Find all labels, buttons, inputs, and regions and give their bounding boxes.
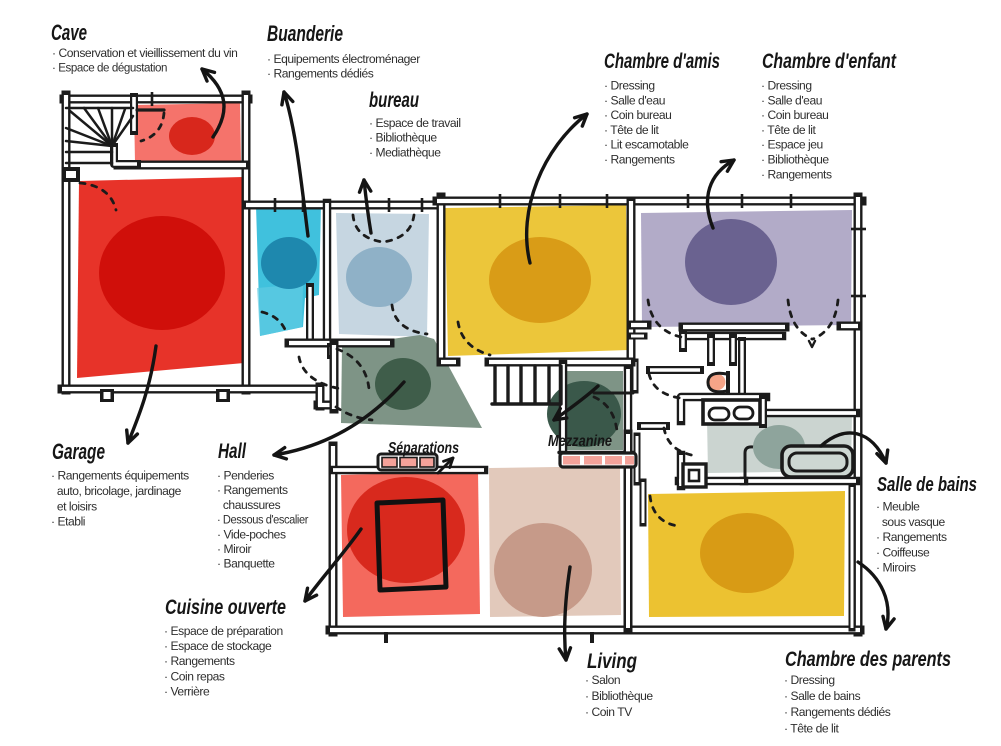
svg-text:Chambre des parents: Chambre des parents xyxy=(785,648,951,671)
svg-text:Chambre d'enfant: Chambre d'enfant xyxy=(762,50,897,73)
svg-text:Hall: Hall xyxy=(218,440,247,463)
svg-text:Mezzanine: Mezzanine xyxy=(548,433,612,450)
svg-text:Séparations: Séparations xyxy=(388,440,459,457)
svg-text:Living: Living xyxy=(587,650,637,673)
svg-text:Buanderie: Buanderie xyxy=(267,21,343,46)
svg-text:Garage: Garage xyxy=(52,439,105,464)
svg-text:Chambre d'amis: Chambre d'amis xyxy=(604,50,720,73)
svg-text:Cuisine ouverte: Cuisine ouverte xyxy=(165,596,286,619)
svg-text:bureau: bureau xyxy=(369,89,419,112)
svg-text:Salle de bains: Salle de bains xyxy=(877,474,977,496)
svg-text:Cave: Cave xyxy=(51,20,87,45)
